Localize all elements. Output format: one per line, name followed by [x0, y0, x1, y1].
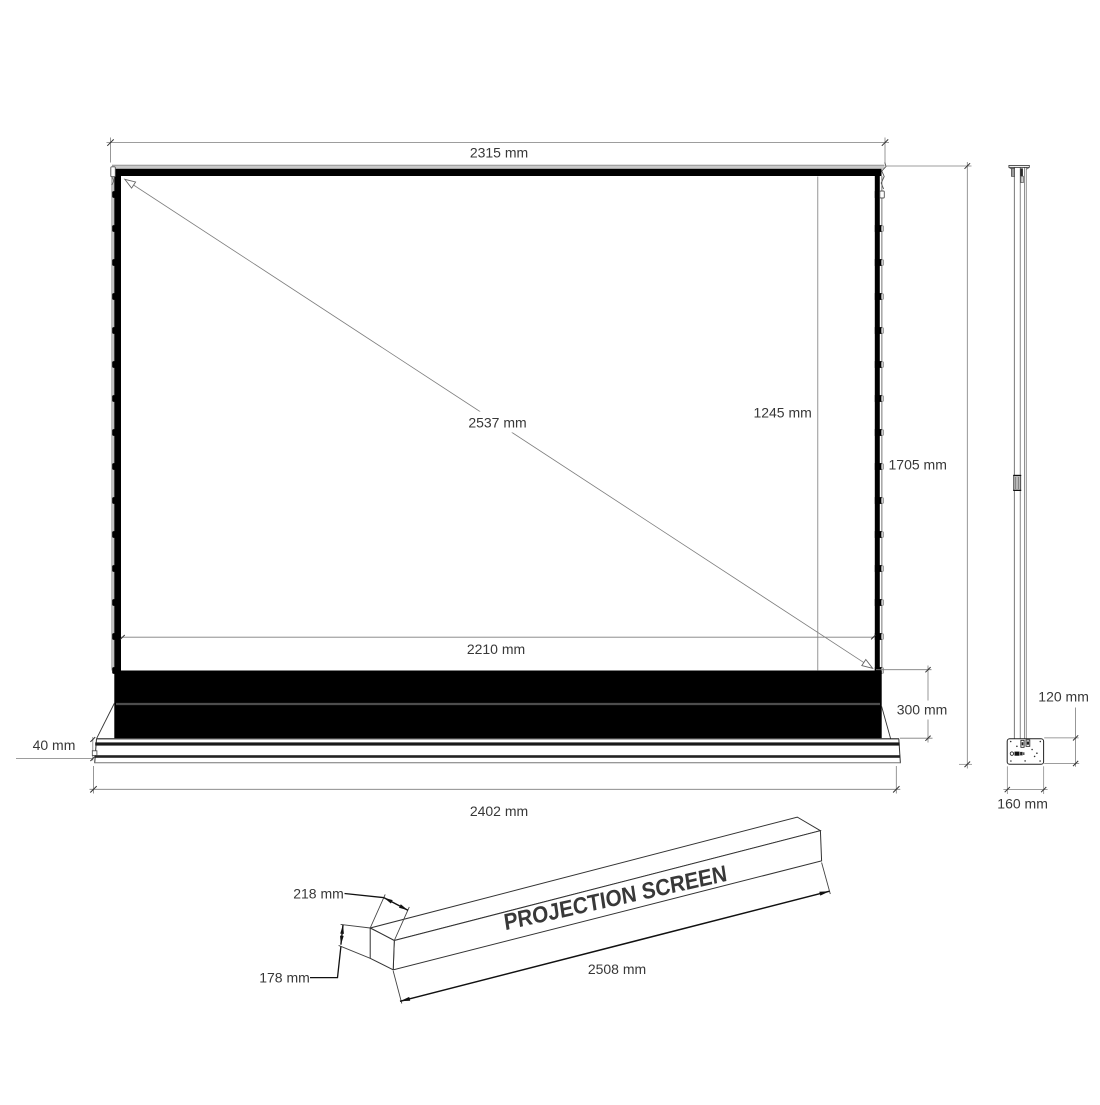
- svg-text:160 mm: 160 mm: [997, 796, 1048, 812]
- svg-text:2315 mm: 2315 mm: [470, 145, 528, 161]
- svg-text:178 mm: 178 mm: [259, 969, 310, 985]
- svg-text:40 mm: 40 mm: [33, 737, 76, 753]
- svg-text:120 mm: 120 mm: [1038, 689, 1089, 705]
- svg-text:2537 mm: 2537 mm: [468, 415, 526, 431]
- svg-text:2210 mm: 2210 mm: [467, 641, 525, 657]
- svg-text:2402 mm: 2402 mm: [470, 803, 528, 819]
- svg-text:218 mm: 218 mm: [293, 886, 344, 902]
- svg-text:2508 mm: 2508 mm: [588, 961, 646, 977]
- svg-text:1705 mm: 1705 mm: [889, 456, 947, 472]
- svg-text:300 mm: 300 mm: [897, 702, 948, 718]
- svg-text:1245 mm: 1245 mm: [753, 404, 811, 420]
